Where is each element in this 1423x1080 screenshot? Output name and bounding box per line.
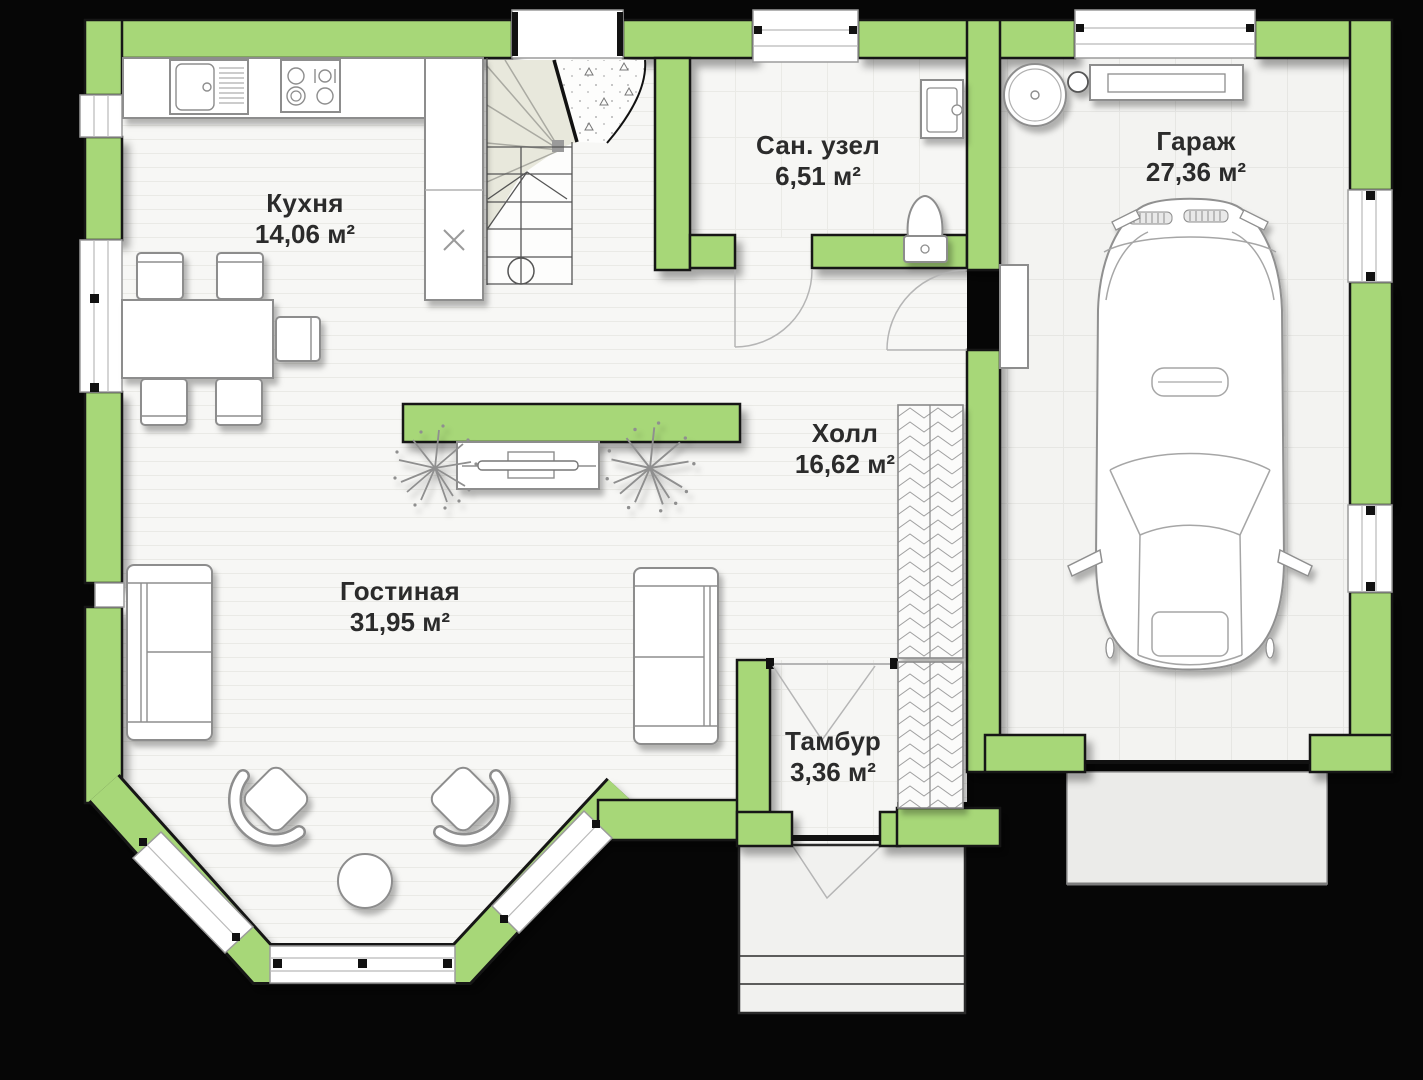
boiler-icon — [1004, 64, 1066, 126]
garage-wall-bottom — [967, 350, 1000, 772]
car-hood-scoop — [1152, 368, 1228, 396]
garage-door-panel — [1000, 265, 1028, 368]
living-bottom-wall — [598, 800, 740, 840]
left-wall-1 — [85, 20, 122, 95]
window-garage-top — [1075, 10, 1255, 58]
drain-icon — [1068, 72, 1088, 92]
porch — [739, 845, 965, 1013]
window-kitchen-left — [80, 95, 122, 137]
room-label-living: Гостиная 31,95 м² — [340, 577, 460, 637]
garage-door-strip — [1085, 737, 1310, 762]
room-name: Кухня — [255, 189, 355, 218]
room-area: 27,36 м² — [1146, 158, 1246, 187]
window-stairs-top — [512, 10, 623, 58]
left-wall-2 — [85, 137, 122, 240]
window-dining-left — [80, 240, 122, 392]
wall-niche — [95, 583, 124, 607]
room-area: 14,06 м² — [255, 220, 355, 249]
kitchen-counter-column — [425, 58, 483, 300]
window-garage-right-2 — [1348, 505, 1392, 592]
room-name: Сан. узел — [756, 131, 880, 160]
top-wall-left — [88, 20, 512, 58]
tv-partition — [403, 404, 740, 442]
window-jamb — [617, 12, 623, 56]
sofa-right — [634, 568, 718, 744]
coffee-table — [338, 854, 392, 908]
room-name: Холл — [795, 419, 895, 448]
room-area: 16,62 м² — [795, 450, 895, 479]
garage-wall-top — [967, 20, 1000, 270]
room-label-kitchen: Кухня 14,06 м² — [255, 189, 355, 249]
dining-table — [122, 300, 273, 378]
sofa-left — [127, 565, 212, 740]
room-area: 6,51 м² — [756, 162, 880, 191]
room-area: 3,36 м² — [785, 758, 881, 787]
wardrobe — [898, 405, 963, 808]
top-wall-mid — [623, 20, 753, 58]
sink-icon — [170, 60, 248, 114]
garage-bottom-wall-l — [985, 735, 1085, 772]
room-label-hall: Холл 16,62 м² — [795, 419, 895, 479]
window-jamb — [512, 12, 518, 56]
stair-bath-wall — [655, 58, 690, 270]
room-label-bathroom: Сан. узел 6,51 м² — [756, 131, 880, 191]
room-label-vestibule: Тамбур 3,36 м² — [785, 727, 881, 787]
vestibule-bottom-left — [737, 812, 792, 846]
washing-machine-icon — [921, 80, 963, 138]
room-name: Гостиная — [340, 577, 460, 606]
garage-shelf — [1090, 65, 1243, 100]
garage-bottom-wall-r — [1310, 735, 1392, 772]
tv-stand — [457, 442, 599, 489]
bath-bottom-wall-l — [690, 235, 735, 268]
room-name: Тамбур — [785, 727, 881, 756]
window-garage-right-1 — [1348, 190, 1392, 282]
right-wall-1 — [1350, 20, 1392, 190]
room-area: 31,95 м² — [340, 608, 460, 637]
stove-icon — [281, 60, 340, 112]
floor-plan: Кухня 14,06 м² Сан. узел 6,51 м² Гараж 2… — [0, 0, 1423, 1080]
bay-window-bottom — [270, 946, 455, 983]
stair-newel — [552, 140, 564, 152]
right-wall-2 — [1350, 282, 1392, 505]
window-bathroom-top — [753, 10, 858, 62]
car-top-view — [1068, 199, 1312, 670]
left-wall-4 — [85, 607, 122, 803]
car-taillight-left — [1106, 638, 1114, 658]
left-wall-3 — [85, 392, 122, 583]
driveway-apron — [1067, 772, 1327, 884]
car-taillight-right — [1266, 638, 1274, 658]
wardrobe-base-wall — [897, 808, 1000, 846]
room-name: Гараж — [1146, 127, 1246, 156]
room-label-garage: Гараж 27,36 м² — [1146, 127, 1246, 187]
